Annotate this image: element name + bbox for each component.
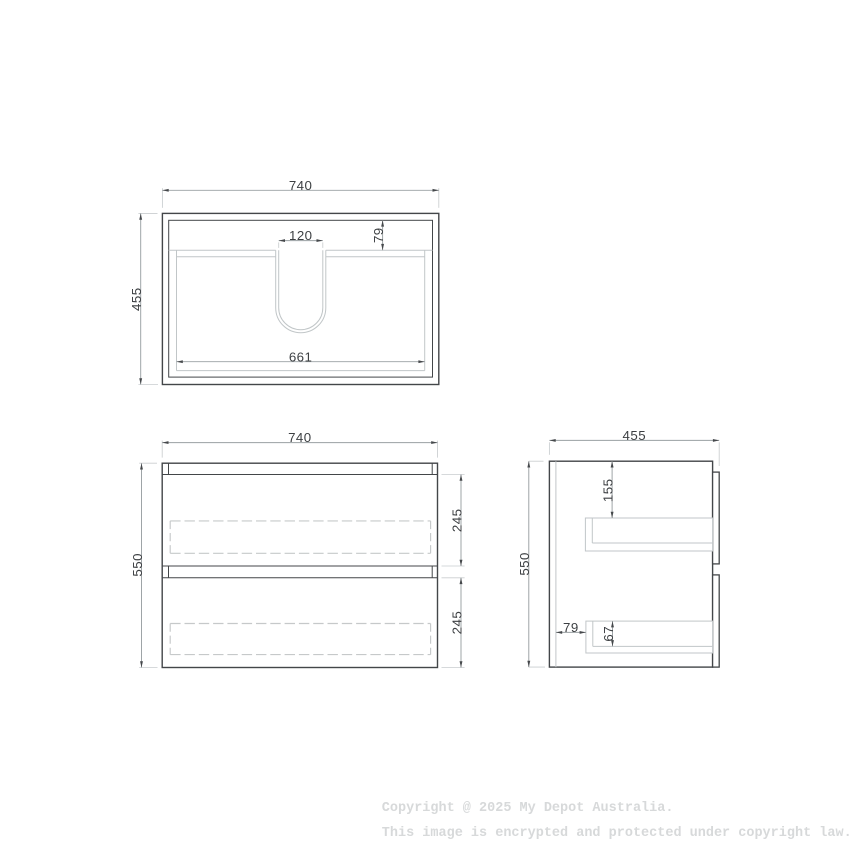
svg-text:This image is encrypted and pr: This image is encrypted and protected un… — [382, 826, 850, 841]
svg-text:740: 740 — [289, 178, 313, 193]
svg-text:Copyright @ 2025 My Depot Aust: Copyright @ 2025 My Depot Australia. — [382, 801, 674, 816]
svg-text:67: 67 — [601, 626, 616, 642]
svg-text:455: 455 — [129, 287, 144, 311]
svg-text:740: 740 — [288, 430, 312, 445]
svg-text:155: 155 — [601, 479, 616, 503]
svg-text:550: 550 — [130, 553, 145, 577]
svg-text:245: 245 — [449, 611, 464, 635]
svg-text:455: 455 — [623, 428, 647, 443]
svg-text:120: 120 — [289, 228, 313, 243]
svg-text:661: 661 — [289, 349, 313, 364]
svg-text:550: 550 — [517, 552, 532, 576]
svg-text:79: 79 — [563, 620, 579, 635]
svg-text:79: 79 — [371, 227, 386, 243]
svg-text:245: 245 — [449, 509, 464, 533]
